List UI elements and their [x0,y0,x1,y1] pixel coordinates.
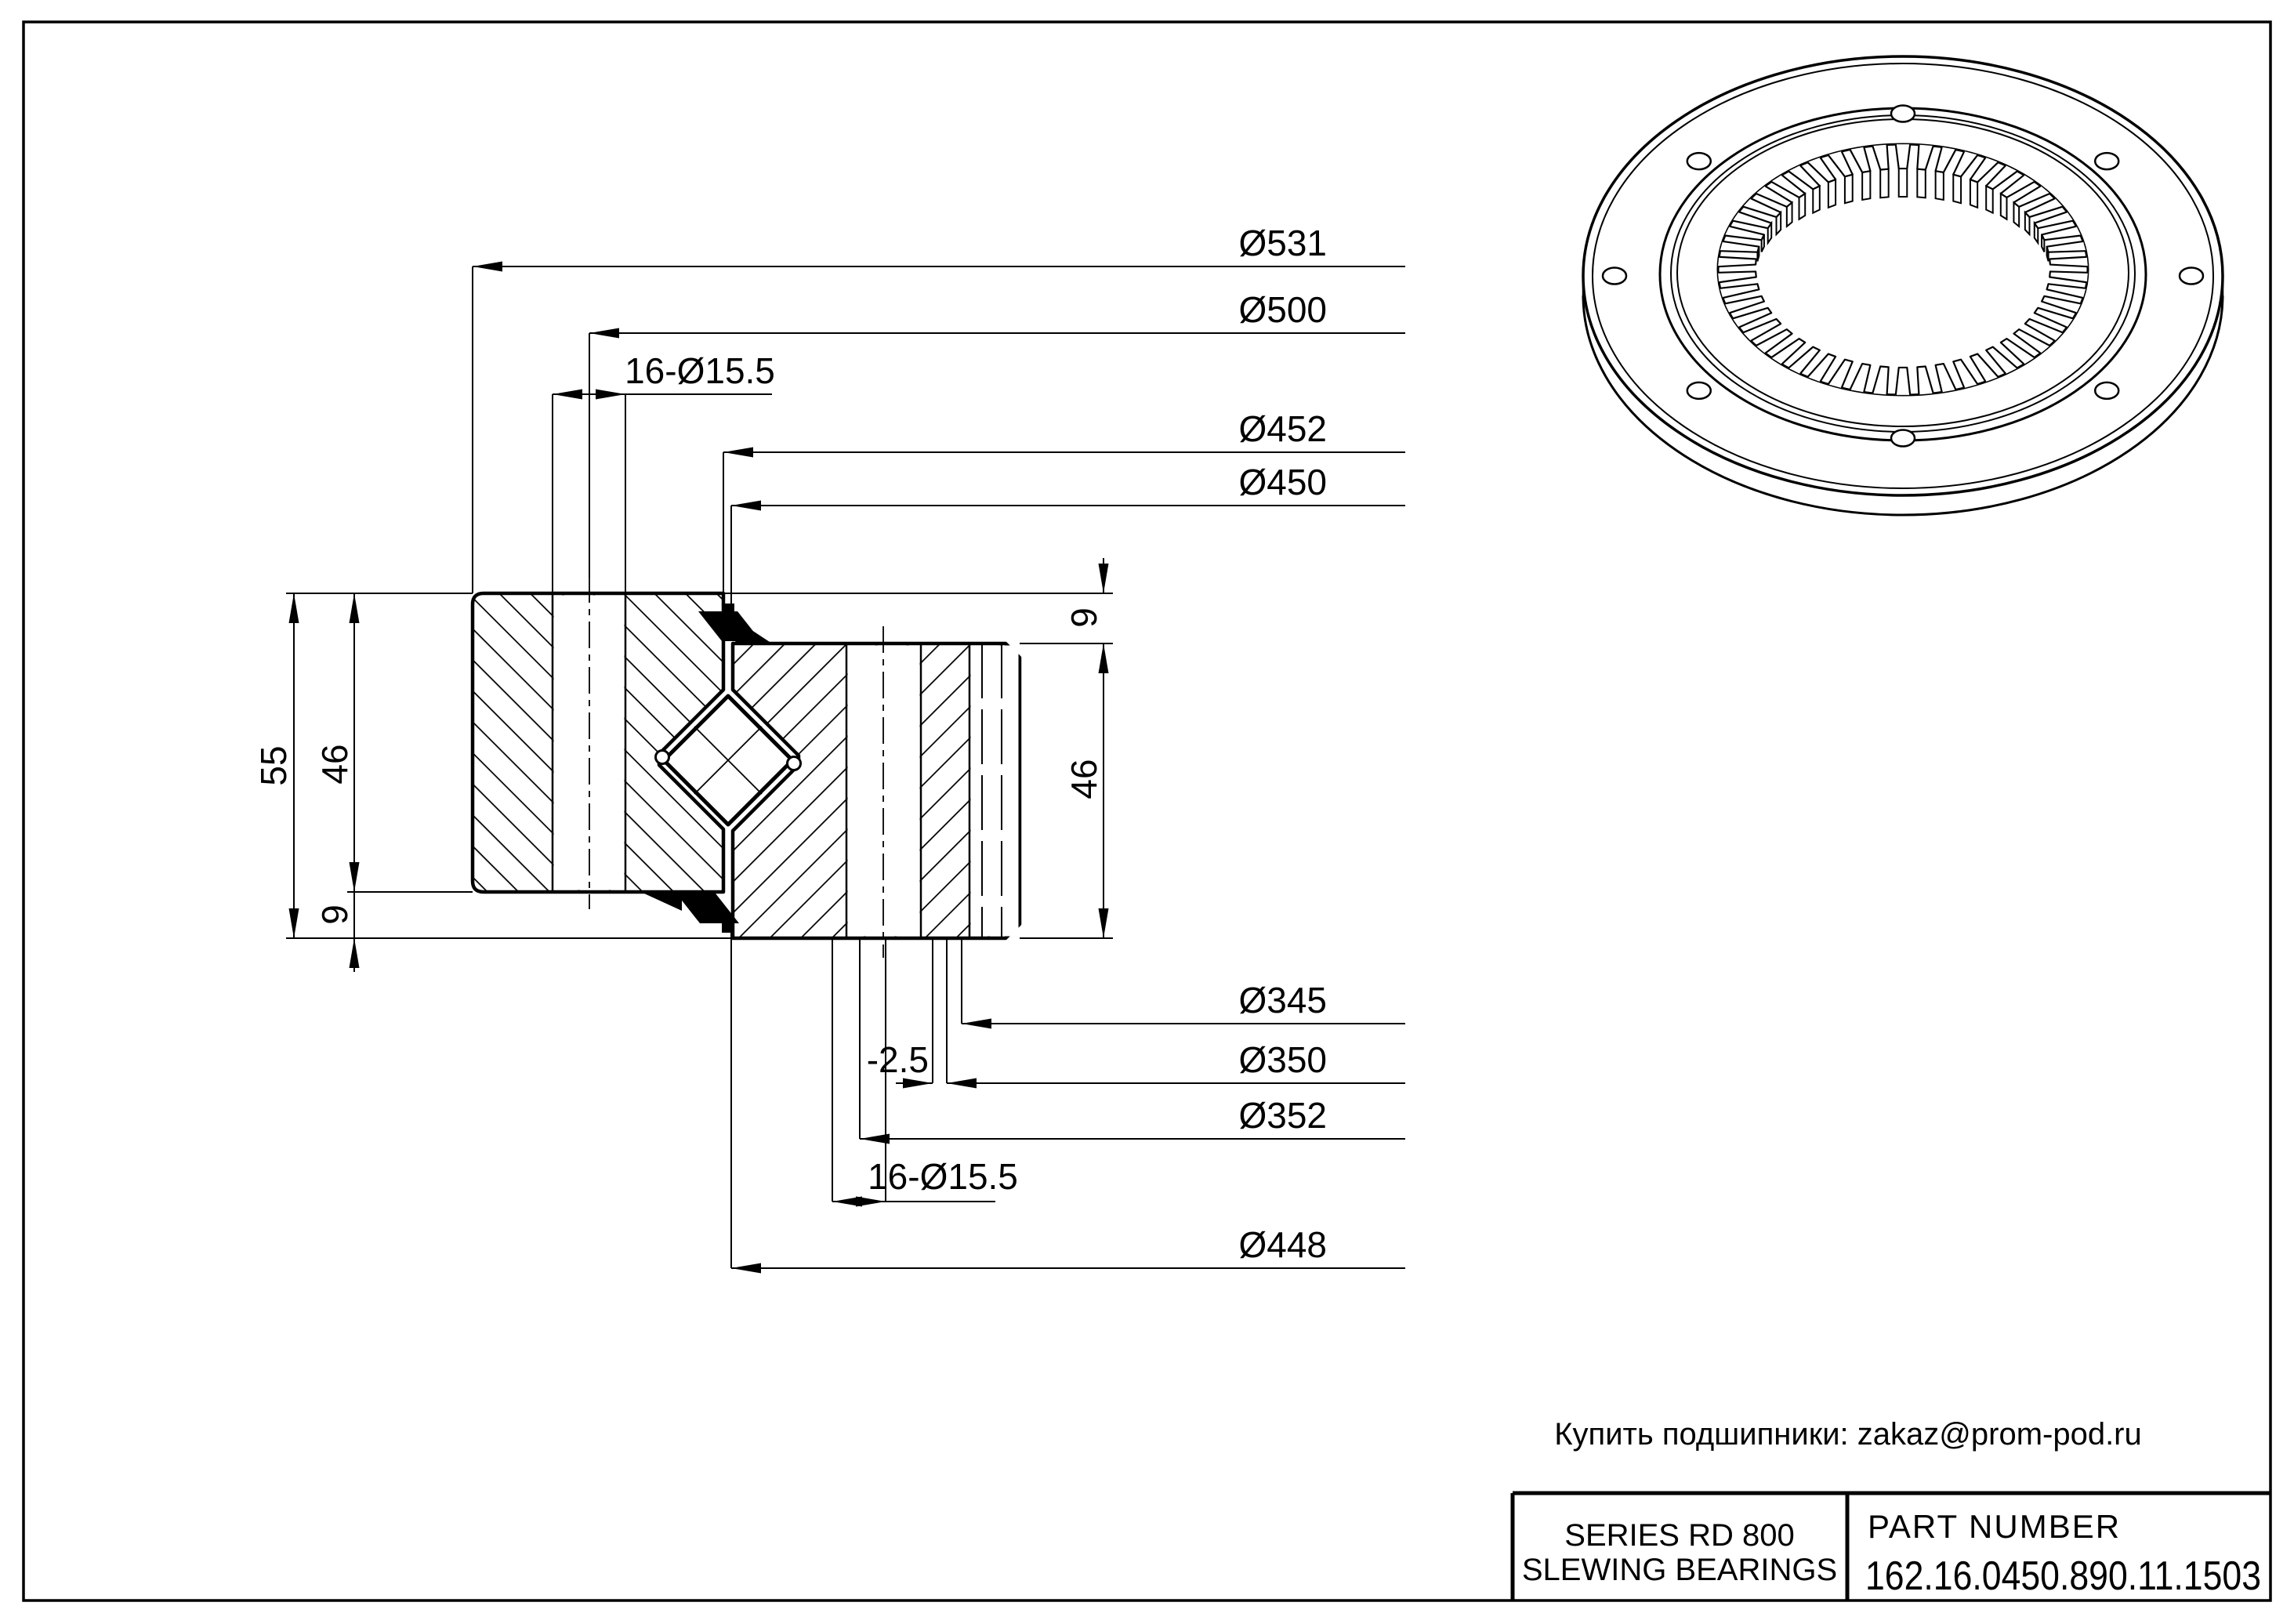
dim-label-d452: Ø452 [1238,408,1327,449]
dim-label-holes-bottom: 16-Ø15.5 [868,1156,1018,1197]
bolt-hole [1891,430,1915,447]
dim-label-d448: Ø448 [1238,1224,1327,1265]
bolt-hole [2095,382,2118,399]
roller-pin-right [788,757,801,770]
dim-label-d352: Ø352 [1238,1095,1327,1136]
dim-label-offset: -2.5 [867,1039,929,1080]
series-title: SERIES RD 800 [1564,1518,1794,1553]
dim-label-9-bottom: 9 [314,904,355,925]
bolt-hole [2180,268,2203,285]
bolt-hole [1603,268,1626,285]
inner-ring [733,626,1020,958]
dim-label-46-left: 46 [314,744,355,784]
part-number-label: PART NUMBER [1868,1508,2121,1545]
contact-email: Купить подшипники: zakaz@prom-pod.ru [1554,1417,2142,1452]
dim-label-d450: Ø450 [1238,462,1327,502]
dim-label-d500: Ø500 [1238,289,1327,330]
roller-pin-left [656,751,669,764]
part-number-value: 162.16.0450.890.11.1503 [1865,1553,2261,1599]
bolt-hole [1687,382,1711,399]
dim-label-55: 55 [253,745,294,785]
bolt-hole [1687,153,1711,169]
dim-label-46-right: 46 [1064,759,1104,799]
dim-label-holes-top: 16-Ø15.5 [625,350,775,391]
dim-label-9-top: 9 [1064,607,1104,628]
series-subtitle: SLEWING BEARINGS [1522,1553,1837,1587]
technical-drawing: Ø531 Ø500 16-Ø15.5 Ø452 Ø450 Ø345 -2.5 Ø [0,0,2294,1624]
bolt-hole [2095,153,2118,169]
dim-label-d350: Ø350 [1238,1039,1327,1080]
bolt-hole [1891,106,1915,122]
dim-label-d531: Ø531 [1238,223,1327,263]
drawing-sheet: Ø531 Ø500 16-Ø15.5 Ø452 Ø450 Ø345 -2.5 Ø [0,0,2294,1624]
dim-label-d345: Ø345 [1238,980,1327,1020]
gear-band [971,646,1019,937]
